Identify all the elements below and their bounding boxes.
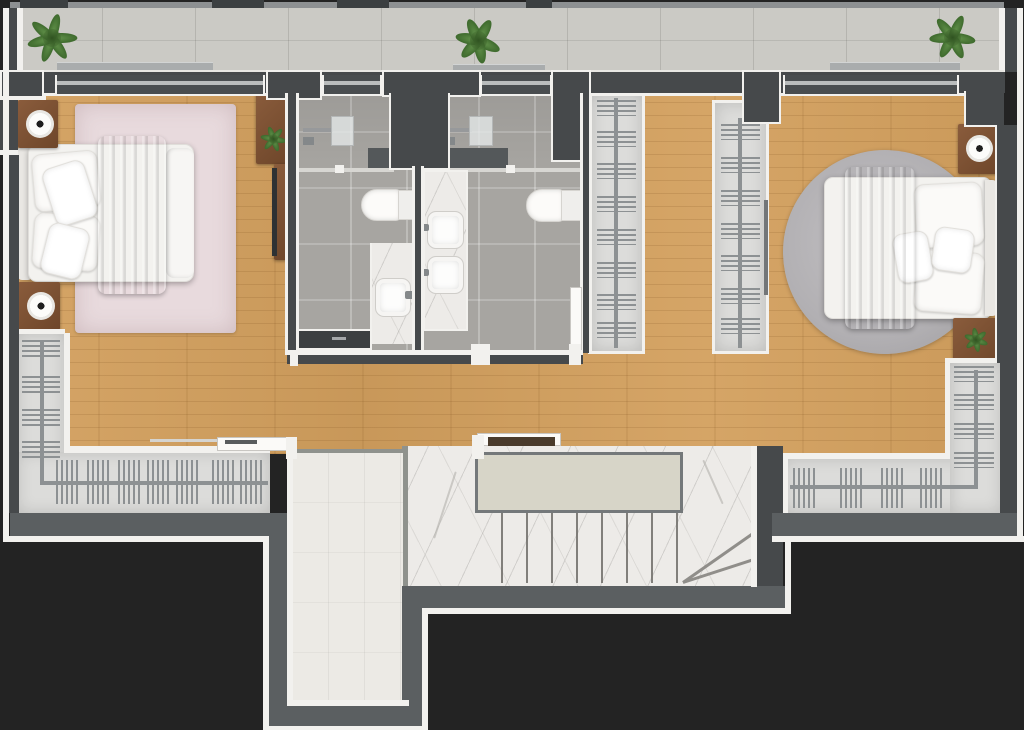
hanger-rack	[881, 468, 905, 508]
staircase-steps	[478, 513, 683, 583]
wall-outline	[1017, 8, 1023, 540]
door-post	[286, 437, 297, 459]
hanger-rack	[597, 131, 636, 147]
hanger-rack	[793, 468, 817, 508]
bed-pillow	[930, 225, 976, 274]
wall-outline	[3, 8, 9, 540]
hanger-rack	[118, 460, 142, 504]
hanger-rack	[22, 376, 60, 393]
decor-bowl	[966, 135, 993, 162]
wall-outline	[17, 8, 23, 72]
hanger-rack	[721, 318, 760, 334]
shower-glass-post	[506, 165, 515, 173]
wall-pier	[742, 70, 781, 124]
hanger-rack	[240, 460, 264, 504]
potted-plant	[25, 12, 79, 64]
wall-outline	[17, 329, 65, 334]
floor-divider	[295, 449, 403, 453]
bedroom2-wall-step	[964, 91, 1004, 127]
hanger-rack	[147, 460, 171, 504]
hanger-rack	[721, 124, 760, 140]
wall-outline	[422, 608, 791, 614]
bathroom2-door	[570, 287, 582, 351]
bathroom-south-wall	[287, 355, 583, 364]
balcony-left-wall	[9, 8, 17, 72]
double-vanity	[423, 170, 468, 331]
wall-outline	[785, 538, 791, 614]
wall-outline	[772, 536, 1024, 542]
hanger-rack	[954, 394, 994, 410]
shower-wall	[389, 93, 450, 170]
decor-bowl	[26, 110, 54, 138]
hanger-rack	[22, 340, 60, 357]
window	[480, 75, 552, 94]
wall-outline	[64, 333, 70, 452]
bathroom1-door	[289, 329, 372, 350]
hanger-rack	[87, 460, 111, 504]
bed-blanket	[845, 167, 915, 329]
wall-outline	[3, 536, 269, 542]
toilet-bowl	[526, 189, 564, 222]
bedroom-bathroom-wall	[285, 93, 299, 355]
hanger-rack	[954, 423, 994, 439]
shower-bench	[445, 148, 508, 168]
hanger-rack	[840, 468, 864, 508]
shower-head	[331, 116, 354, 146]
window	[783, 75, 959, 94]
bed-blanket	[98, 136, 166, 294]
bed-sheet	[166, 148, 194, 278]
stair-landing	[475, 452, 683, 513]
hanger-rack	[597, 100, 636, 116]
potted-plant	[453, 12, 503, 67]
wall-outline	[287, 446, 293, 706]
shower-glass	[450, 168, 583, 172]
hanger-rack	[721, 157, 760, 173]
wash-basin	[427, 256, 464, 294]
hanger-rack	[597, 196, 636, 212]
hanger-rack	[22, 441, 60, 458]
left-wall	[9, 155, 19, 513]
hanger-rack	[920, 468, 944, 508]
hanger-rack	[721, 190, 760, 206]
wall-outline	[287, 700, 409, 706]
wall-outline	[263, 536, 269, 730]
door-handle	[332, 337, 346, 340]
hanger-rack	[954, 366, 994, 382]
hanger-rack	[597, 322, 636, 338]
perimeter-wall	[402, 586, 788, 610]
wall-outline	[945, 358, 1002, 363]
tv-screen	[272, 168, 277, 256]
stair-corridor-floor	[293, 450, 403, 702]
shower-glass-post	[335, 165, 344, 173]
floor-plan	[0, 0, 1024, 730]
door-leaf	[488, 437, 555, 446]
shower-head	[469, 116, 493, 146]
wall-outline	[263, 726, 428, 730]
perimeter-wall	[269, 536, 288, 726]
door-post	[472, 435, 484, 459]
potted-plant	[962, 325, 990, 354]
balcony-right-wall	[1005, 8, 1017, 72]
shower-arm	[303, 128, 333, 132]
wall-outline	[945, 362, 950, 453]
hanger-rack	[176, 460, 200, 504]
perimeter-wall	[772, 513, 1022, 536]
hanger-rack	[721, 223, 760, 239]
toilet-tank	[561, 190, 582, 221]
door-post	[290, 352, 298, 366]
shower-knob	[303, 137, 314, 145]
hanger-rack	[721, 255, 760, 271]
window	[322, 75, 382, 94]
hanger-rack	[954, 452, 994, 468]
perimeter-wall	[402, 610, 422, 728]
bathroom-divider-wall	[412, 166, 424, 355]
hanger-rack	[597, 262, 636, 278]
hanger-rack	[721, 288, 760, 304]
closet-partition	[764, 200, 768, 295]
door-swing-rod	[150, 439, 217, 442]
hanger-rack	[597, 294, 636, 310]
door-post	[569, 344, 581, 365]
hanger-rack	[56, 460, 80, 504]
bedroom2-wall-step	[959, 72, 1005, 93]
perimeter-wall	[10, 513, 288, 536]
door-post	[471, 344, 490, 365]
wall-outline	[783, 453, 788, 513]
door-leaf	[225, 440, 257, 444]
hanger-rack	[597, 163, 636, 179]
hanger-rack	[212, 460, 236, 504]
toilet-bowl	[361, 189, 401, 221]
wall-outline	[783, 453, 950, 459]
hanger-rack	[22, 409, 60, 426]
potted-plant	[927, 12, 977, 62]
potted-plant	[259, 124, 288, 154]
wall-outline	[422, 608, 428, 730]
hanger-rack	[597, 229, 636, 245]
shower-glass	[296, 168, 394, 172]
window	[55, 75, 265, 94]
wall-outline	[999, 8, 1005, 72]
decor-bowl	[27, 292, 55, 320]
wall-outline	[751, 446, 757, 587]
wash-basin	[427, 211, 464, 249]
